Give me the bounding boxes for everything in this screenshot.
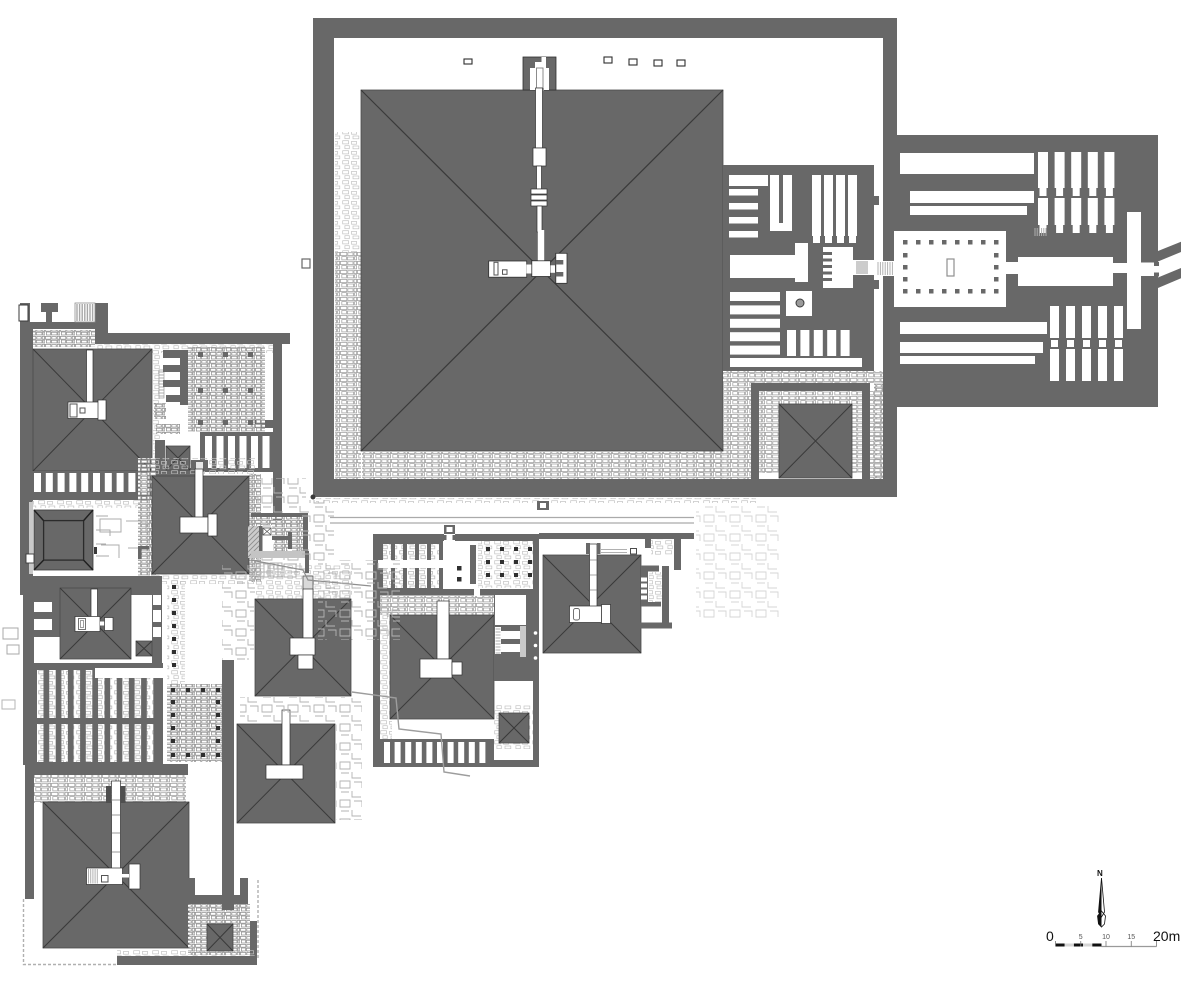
svg-text:15: 15 [1127, 934, 1135, 941]
svg-text:0: 0 [1046, 928, 1054, 944]
svg-text:5: 5 [1079, 934, 1083, 941]
svg-text:10: 10 [1102, 934, 1110, 941]
svg-text:N: N [1097, 869, 1103, 878]
svg-text:20m: 20m [1153, 928, 1180, 944]
